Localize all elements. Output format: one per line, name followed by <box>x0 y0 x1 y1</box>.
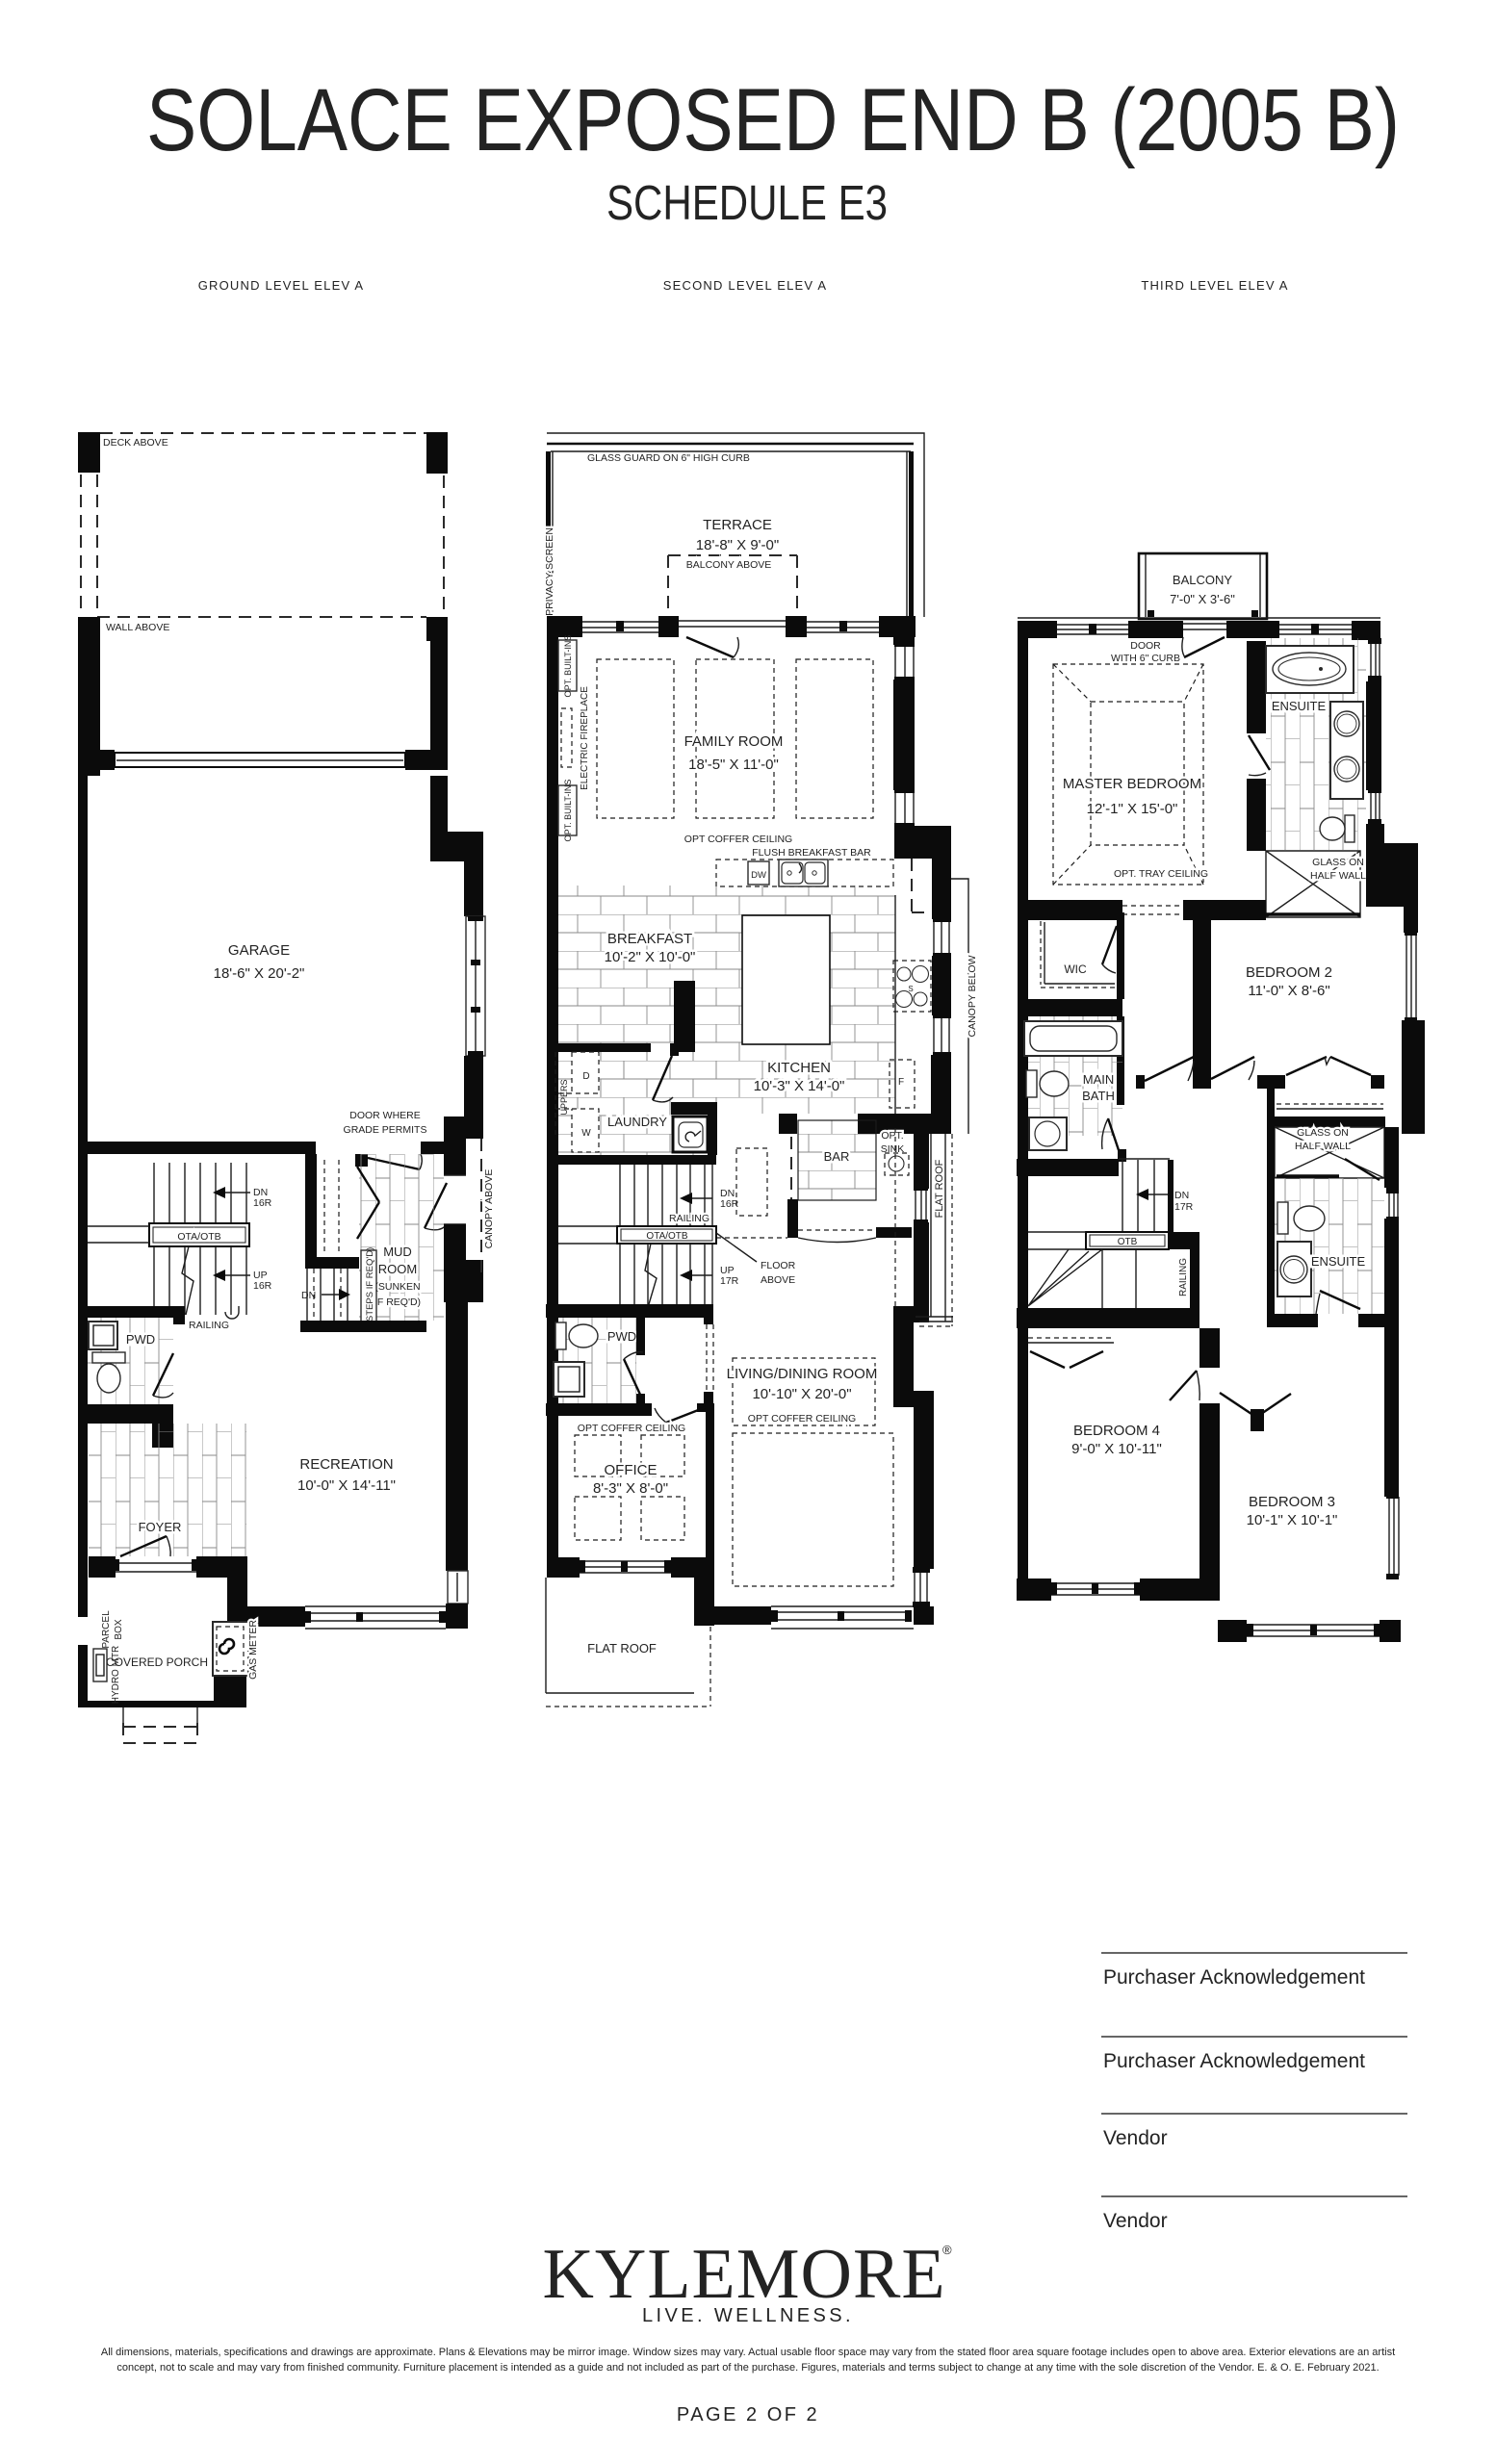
svg-text:RAILING: RAILING <box>669 1213 709 1224</box>
svg-text:BATH: BATH <box>1082 1089 1115 1103</box>
svg-text:7'-0" X 3'-6": 7'-0" X 3'-6" <box>1170 592 1235 606</box>
svg-text:PAGE 2 OF 2: PAGE 2 OF 2 <box>677 2404 819 2425</box>
svg-text:OTA/OTB: OTA/OTB <box>646 1231 687 1242</box>
svg-text:9'-0" X 10'-11": 9'-0" X 10'-11" <box>1071 1441 1162 1457</box>
svg-text:HYDRO MTR: HYDRO MTR <box>111 1646 121 1705</box>
svg-text:10'-3" X 14'-0": 10'-3" X 14'-0" <box>754 1078 845 1094</box>
svg-text:RAILING: RAILING <box>189 1320 229 1331</box>
svg-text:GARAGE: GARAGE <box>228 942 290 959</box>
svg-text:GAS METER: GAS METER <box>247 1620 259 1680</box>
svg-text:RAILING: RAILING <box>1178 1258 1189 1296</box>
svg-text:BEDROOM 2: BEDROOM 2 <box>1246 964 1332 981</box>
svg-text:FLAT ROOF: FLAT ROOF <box>587 1641 657 1655</box>
svg-text:FLOOR: FLOOR <box>761 1260 796 1271</box>
svg-text:THIRD LEVEL ELEV A: THIRD LEVEL ELEV A <box>1141 278 1288 293</box>
svg-text:ENSUITE: ENSUITE <box>1272 699 1327 713</box>
svg-text:FLUSH BREAKFAST BAR: FLUSH BREAKFAST BAR <box>752 847 871 859</box>
svg-text:WIC: WIC <box>1064 962 1087 976</box>
svg-text:OPT COFFER CEILING: OPT COFFER CEILING <box>748 1413 856 1424</box>
svg-text:concept, not to scale and may: concept, not to scale and may vary from … <box>116 2362 1379 2374</box>
svg-text:DOOR WHERE: DOOR WHERE <box>349 1110 421 1121</box>
svg-text:WALL ABOVE: WALL ABOVE <box>106 622 169 633</box>
svg-text:(STEPS IF REQ'D): (STEPS IF REQ'D) <box>365 1247 375 1324</box>
svg-text:ABOVE: ABOVE <box>761 1274 795 1286</box>
svg-text:16R: 16R <box>253 1280 272 1292</box>
svg-text:All dimensions, materials, spe: All dimensions, materials, specification… <box>101 2347 1395 2358</box>
svg-text:BEDROOM 3: BEDROOM 3 <box>1249 1494 1335 1510</box>
svg-text:GLASS GUARD ON 6" HIGH CURB: GLASS GUARD ON 6" HIGH CURB <box>587 452 750 464</box>
svg-text:16R: 16R <box>720 1198 739 1210</box>
svg-text:MUD: MUD <box>383 1245 412 1259</box>
svg-text:17R: 17R <box>720 1275 739 1287</box>
svg-text:10'-0" X 14'-11": 10'-0" X 14'-11" <box>297 1477 396 1494</box>
svg-text:OPT COFFER CEILING: OPT COFFER CEILING <box>684 834 792 845</box>
svg-text:SECOND LEVEL ELEV A: SECOND LEVEL ELEV A <box>663 278 827 293</box>
svg-text:OFFICE: OFFICE <box>605 1462 658 1478</box>
svg-text:PWD: PWD <box>126 1332 155 1347</box>
svg-text:ELECTRIC FIREPLACE: ELECTRIC FIREPLACE <box>580 686 590 790</box>
svg-text:BALCONY: BALCONY <box>1173 573 1232 587</box>
svg-text:LIVING/DINING ROOM: LIVING/DINING ROOM <box>727 1366 878 1382</box>
svg-text:D: D <box>582 1071 589 1082</box>
svg-text:PWD: PWD <box>607 1329 636 1344</box>
svg-text:®: ® <box>942 2243 952 2257</box>
svg-text:CANOPY ABOVE: CANOPY ABOVE <box>483 1169 495 1249</box>
svg-text:PARCEL: PARCEL <box>101 1610 112 1649</box>
svg-text:Vendor: Vendor <box>1103 2127 1168 2149</box>
svg-text:W: W <box>581 1128 591 1139</box>
svg-text:F: F <box>898 1077 904 1088</box>
svg-text:16R: 16R <box>253 1197 272 1209</box>
svg-text:DW: DW <box>751 870 766 881</box>
svg-text:TERRACE: TERRACE <box>703 517 772 533</box>
svg-text:OPT. BUILT-INS: OPT. BUILT-INS <box>563 780 573 842</box>
svg-text:S: S <box>908 985 913 993</box>
svg-text:SOLACE EXPOSED END B (2005 B): SOLACE EXPOSED END B (2005 B) <box>146 71 1400 169</box>
svg-text:BAR: BAR <box>824 1149 850 1164</box>
svg-text:MASTER BEDROOM: MASTER BEDROOM <box>1063 776 1201 792</box>
svg-text:ROOM: ROOM <box>378 1262 417 1276</box>
svg-text:Purchaser Acknowledgement: Purchaser Acknowledgement <box>1103 1966 1365 1989</box>
svg-text:8'-3" X 8'-0": 8'-3" X 8'-0" <box>593 1480 668 1497</box>
svg-text:GLASS ON: GLASS ON <box>1297 1127 1349 1139</box>
svg-text:SCHEDULE E3: SCHEDULE E3 <box>606 175 888 230</box>
svg-text:Purchaser Acknowledgement: Purchaser Acknowledgement <box>1103 2050 1365 2072</box>
svg-text:UPPERS: UPPERS <box>559 1079 569 1115</box>
svg-text:18'-8" X 9'-0": 18'-8" X 9'-0" <box>696 537 779 553</box>
svg-text:FOYER: FOYER <box>139 1520 182 1534</box>
svg-text:ENSUITE: ENSUITE <box>1311 1254 1366 1269</box>
svg-text:10'-2" X 10'-0": 10'-2" X 10'-0" <box>605 949 696 965</box>
svg-text:17R: 17R <box>1174 1201 1194 1213</box>
svg-text:11'-0" X 8'-6": 11'-0" X 8'-6" <box>1248 983 1329 999</box>
svg-text:HALF WALL: HALF WALL <box>1310 870 1366 882</box>
svg-text:LAUNDRY: LAUNDRY <box>607 1115 667 1129</box>
svg-text:IF REQ'D): IF REQ'D) <box>374 1296 421 1308</box>
svg-text:GLASS ON: GLASS ON <box>1312 857 1364 868</box>
svg-text:OPT COFFER CEILING: OPT COFFER CEILING <box>578 1423 685 1434</box>
svg-text:10'-10" X 20'-0": 10'-10" X 20'-0" <box>752 1386 851 1402</box>
svg-text:Vendor: Vendor <box>1103 2210 1168 2232</box>
svg-text:BEDROOM 4: BEDROOM 4 <box>1073 1423 1160 1439</box>
svg-text:FLAT ROOF: FLAT ROOF <box>934 1159 945 1218</box>
svg-text:MAIN: MAIN <box>1083 1072 1115 1087</box>
svg-text:BALCONY ABOVE: BALCONY ABOVE <box>686 559 772 571</box>
svg-text:DECK ABOVE: DECK ABOVE <box>103 437 168 449</box>
svg-text:OTB: OTB <box>1118 1237 1138 1247</box>
svg-text:FAMILY ROOM: FAMILY ROOM <box>684 733 784 750</box>
svg-text:PRIVACY SCREEN: PRIVACY SCREEN <box>544 527 555 616</box>
svg-text:DN: DN <box>301 1290 316 1301</box>
svg-text:GROUND LEVEL ELEV A: GROUND LEVEL ELEV A <box>198 278 365 293</box>
svg-text:KITCHEN: KITCHEN <box>767 1060 831 1076</box>
svg-text:CANOPY BELOW: CANOPY BELOW <box>967 955 978 1037</box>
svg-text:WITH 6" CURB: WITH 6" CURB <box>1111 653 1180 664</box>
svg-text:10'-1" X 10'-1": 10'-1" X 10'-1" <box>1247 1512 1338 1528</box>
svg-text:OPT.: OPT. <box>881 1130 903 1142</box>
svg-text:DN: DN <box>1174 1190 1189 1201</box>
svg-text:LIVE. WELLNESS.: LIVE. WELLNESS. <box>642 2305 854 2326</box>
svg-text:12'-1" X 15'-0": 12'-1" X 15'-0" <box>1087 801 1178 817</box>
svg-text:GRADE PERMITS: GRADE PERMITS <box>344 1124 427 1136</box>
svg-text:18'-6" X 20'-2": 18'-6" X 20'-2" <box>214 965 305 982</box>
svg-text:OPT. TRAY CEILING: OPT. TRAY CEILING <box>1114 868 1208 880</box>
svg-text:OTA/OTB: OTA/OTB <box>177 1231 220 1243</box>
svg-text:KYLEMORE: KYLEMORE <box>542 2235 945 2314</box>
svg-text:(SUNKEN: (SUNKEN <box>374 1281 420 1293</box>
svg-text:DOOR: DOOR <box>1130 640 1161 652</box>
svg-text:BOX: BOX <box>114 1619 124 1639</box>
svg-text:BREAKFAST: BREAKFAST <box>607 931 692 947</box>
svg-text:SINK: SINK <box>881 1143 905 1155</box>
svg-text:RECREATION: RECREATION <box>299 1456 393 1473</box>
svg-text:18'-5" X 11'-0": 18'-5" X 11'-0" <box>688 757 779 773</box>
svg-text:HALF WALL: HALF WALL <box>1295 1141 1351 1152</box>
svg-text:OPT. BUILT-INS: OPT. BUILT-INS <box>563 635 573 698</box>
